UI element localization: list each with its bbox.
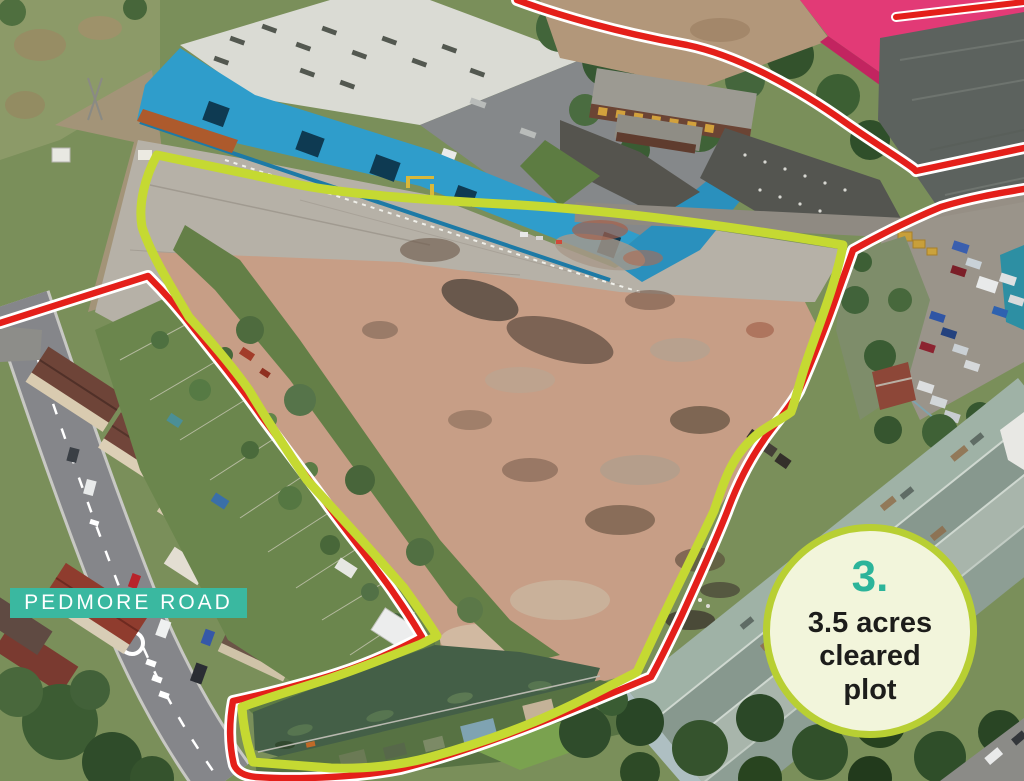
badge-number: 3. xyxy=(852,555,889,599)
badge-line-3: plot xyxy=(843,674,896,707)
badge-line-2: cleared xyxy=(819,640,921,673)
aerial-site-photo: PEDMORE ROAD 3. 3.5 acres cleared plot xyxy=(0,0,1024,781)
plot-info-badge: 3. 3.5 acres cleared plot xyxy=(763,524,977,738)
road-label-pedmore-road: PEDMORE ROAD xyxy=(10,588,247,618)
waste-patch xyxy=(690,18,750,42)
badge-line-1: 3.5 acres xyxy=(808,607,932,640)
road-label-text: PEDMORE ROAD xyxy=(24,591,233,615)
